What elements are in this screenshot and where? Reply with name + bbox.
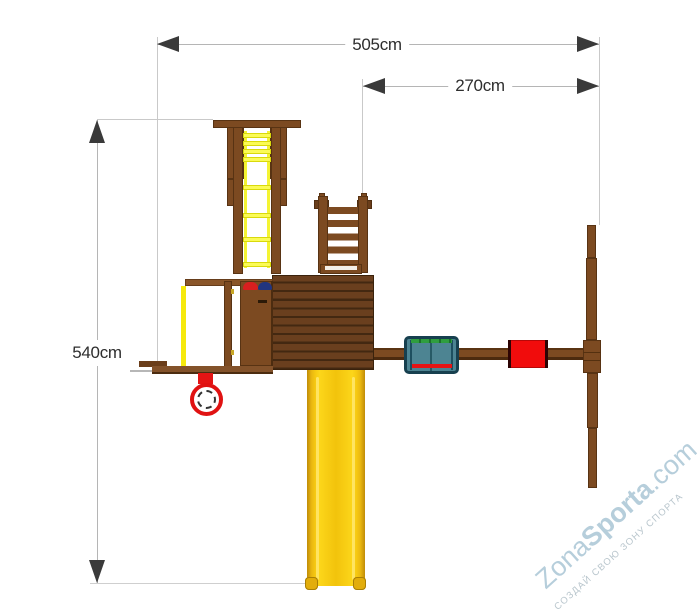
door-latch bbox=[258, 300, 267, 303]
playground-top-view-diagram: 505cm 270cm 540cm bbox=[0, 0, 700, 613]
swing-frame-post-lower bbox=[587, 373, 598, 428]
swing-seat-green-stripe bbox=[411, 339, 452, 343]
steering-wheel-blue bbox=[258, 282, 272, 290]
platform-roof bbox=[272, 275, 374, 370]
platform-edge-rail-inner bbox=[325, 266, 357, 270]
extension-line-left bbox=[157, 37, 158, 367]
rope-ladder-rung bbox=[243, 149, 271, 154]
basketball-net bbox=[197, 390, 216, 409]
playhouse-yellow-post bbox=[181, 286, 186, 367]
swing-frame-crossblock-seam bbox=[583, 352, 601, 353]
rope-ladder-rung bbox=[243, 237, 271, 242]
rope-ladder-rung bbox=[243, 133, 271, 138]
climbing-tower-right-post bbox=[271, 127, 281, 274]
rope-ladder-rung bbox=[243, 185, 271, 190]
rope-ladder-rung bbox=[243, 213, 271, 218]
swing-frame-crossblock bbox=[583, 340, 601, 373]
door-hinge bbox=[231, 289, 234, 294]
slide-right-rail-highlight bbox=[352, 377, 355, 580]
dim-total-depth-arrow-bottom-icon bbox=[89, 560, 105, 583]
dim-total-depth-arrow-top-icon bbox=[89, 120, 105, 143]
access-ladder-right-rail bbox=[358, 196, 368, 273]
swing-seat-red-stripe bbox=[412, 364, 452, 368]
swing-frame-post-upper bbox=[586, 258, 597, 340]
extension-line-top-horizontal bbox=[97, 119, 213, 120]
dim-total-depth-label: 540cm bbox=[67, 340, 127, 366]
slide-left-rail-highlight bbox=[316, 377, 319, 580]
extension-line-middle bbox=[362, 79, 363, 195]
playhouse-left-post bbox=[224, 281, 232, 370]
slide-left-foot bbox=[305, 577, 318, 590]
base-beam-shadow bbox=[130, 370, 154, 372]
extension-line-right bbox=[599, 37, 600, 225]
dim-total-width-arrow-left-icon bbox=[157, 36, 179, 52]
dim-swing-width-label: 270cm bbox=[448, 76, 512, 96]
dim-total-width-label: 505cm bbox=[345, 35, 409, 55]
access-ladder-left-rail bbox=[318, 196, 328, 273]
ground-reference-line bbox=[90, 583, 308, 584]
swing-frame-post-top bbox=[587, 225, 596, 258]
swing-frame-crossblock-seam bbox=[583, 360, 601, 361]
door-hinge bbox=[231, 350, 234, 355]
dim-total-width-arrow-right-icon bbox=[577, 36, 599, 52]
dim-swing-width-arrow-right-icon bbox=[577, 78, 599, 94]
rope-ladder-rung bbox=[243, 157, 271, 162]
dim-swing-width-arrow-left-icon bbox=[363, 78, 385, 94]
rope-ladder-rung bbox=[243, 141, 271, 146]
watermark-brand: ZonaSporta.com bbox=[530, 434, 700, 595]
swing-seat-red bbox=[508, 340, 548, 368]
rope-ladder-rung bbox=[243, 262, 271, 267]
slide-right-foot bbox=[353, 577, 366, 590]
steering-wheel-red bbox=[243, 282, 258, 290]
climbing-tower-left-post bbox=[233, 127, 243, 274]
playhouse-door bbox=[240, 281, 273, 366]
swing-frame-post-bottom bbox=[588, 428, 597, 488]
